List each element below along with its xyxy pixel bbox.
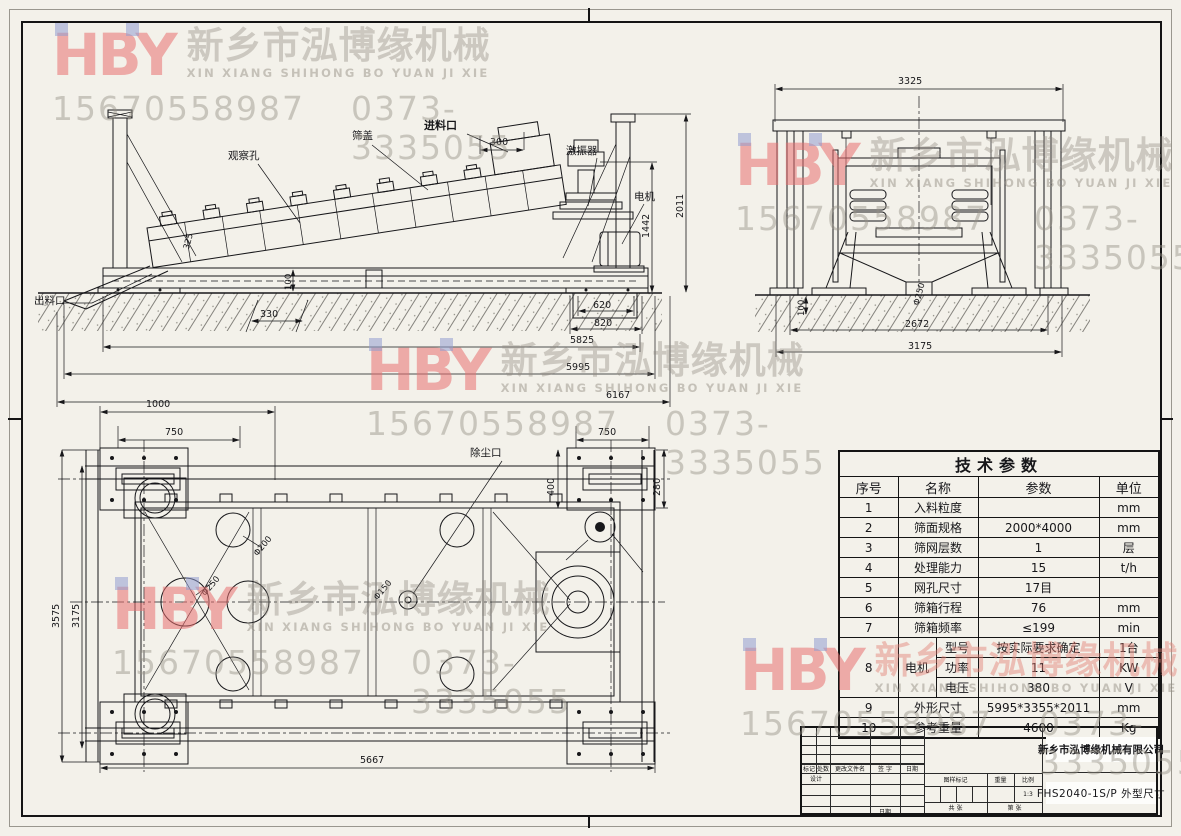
screen-cover-label: 筛盖 [352, 131, 373, 141]
dust-port-label: 除尘口 [470, 448, 502, 458]
label-drawing-mark: 图样标记 [924, 773, 987, 786]
drawing-number: FHS2040-1S/P 外型尺寸 [1046, 782, 1156, 804]
table-row: 5网孔尺寸17目 [839, 578, 1159, 598]
table-row: 4处理能力15t/h [839, 558, 1159, 578]
table-row: 7筛箱频率≤199min [839, 618, 1159, 638]
motor-label: 电机 [634, 192, 655, 202]
title-block: 标记 处数 更改文件名 签 字 日期 设计 日期 图样标记 重量 比例 1:3 … [800, 726, 1158, 815]
dim-280: 280 [653, 478, 663, 496]
dim-100-end: 100 [797, 300, 807, 316]
exciter-label: 激振器 [566, 146, 598, 156]
label-design: 设计 [802, 773, 830, 784]
dim-5667: 5667 [360, 756, 384, 766]
dim-750-right: 750 [598, 428, 616, 438]
end-view-linework [755, 84, 1090, 357]
label-date2: 日期 [870, 806, 900, 816]
col-header-no: 序号 [839, 477, 898, 498]
dim-3175-top: 3175 [72, 604, 82, 628]
label-mark: 标记 [802, 764, 816, 773]
tech-params-table: 技术参数 序号 名称 参数 单位 1入料粒度mm 2筛面规格2000*4000m… [838, 450, 1160, 739]
table-row: 9外形尺寸5995*3355*2011mm [839, 698, 1159, 718]
dim-3175-end: 3175 [908, 342, 932, 352]
revision-rows [802, 728, 924, 764]
col-header-value: 参数 [978, 477, 1099, 498]
label-scale: 比例 [1014, 773, 1042, 786]
label-sheets: 共 张 [924, 802, 987, 813]
dim-6167: 6167 [606, 391, 630, 401]
dim-3325: 3325 [898, 77, 922, 87]
col-header-name: 名称 [898, 477, 978, 498]
table-row: 3筛网层数1层 [839, 538, 1159, 558]
dim-2672: 2672 [905, 320, 929, 330]
discharge-outlet-label: 出料口 [34, 296, 66, 306]
label-date: 日期 [900, 764, 924, 773]
table-row: 1入料粒度mm [839, 498, 1159, 518]
company-name: 新乡市泓博缘机械有限公司 [1046, 737, 1156, 762]
table-row: 6筛箱行程76mm [839, 598, 1159, 618]
table-row: 2筛面规格2000*4000mm [839, 518, 1159, 538]
col-header-unit: 单位 [1099, 477, 1159, 498]
dim-620: 620 [593, 301, 611, 311]
dim-2011: 2011 [676, 194, 686, 218]
drawing-sheet: 观察孔 筛盖 进料口 300 激振器 电机 出料口 325 100 330 62… [0, 0, 1181, 836]
dim-5995: 5995 [566, 363, 590, 373]
dim-330: 330 [260, 310, 278, 320]
table-title: 技术参数 [839, 451, 1159, 477]
dim-1442: 1442 [642, 214, 652, 238]
label-page: 第 张 [987, 802, 1042, 813]
dim-5825: 5825 [570, 336, 594, 346]
label-count: 处数 [816, 764, 830, 773]
dim-3575: 3575 [52, 604, 62, 628]
dim-820: 820 [594, 319, 612, 329]
top-view-linework [58, 406, 670, 773]
feed-inlet-label: 进料口 [424, 121, 457, 131]
observation-hole-label: 观察孔 [228, 151, 260, 161]
table-row-motor: 8 电机 型号 按实际要求确定 1台 [839, 638, 1159, 658]
dim-300: 300 [490, 138, 508, 148]
dim-1000: 1000 [146, 400, 170, 410]
dim-400: 400 [547, 478, 557, 496]
dim-100-side: 100 [284, 274, 294, 290]
label-sign: 签 字 [870, 764, 900, 773]
label-file: 更改文件名 [830, 764, 870, 773]
dim-750-left: 750 [165, 428, 183, 438]
label-weight: 重量 [987, 773, 1014, 786]
